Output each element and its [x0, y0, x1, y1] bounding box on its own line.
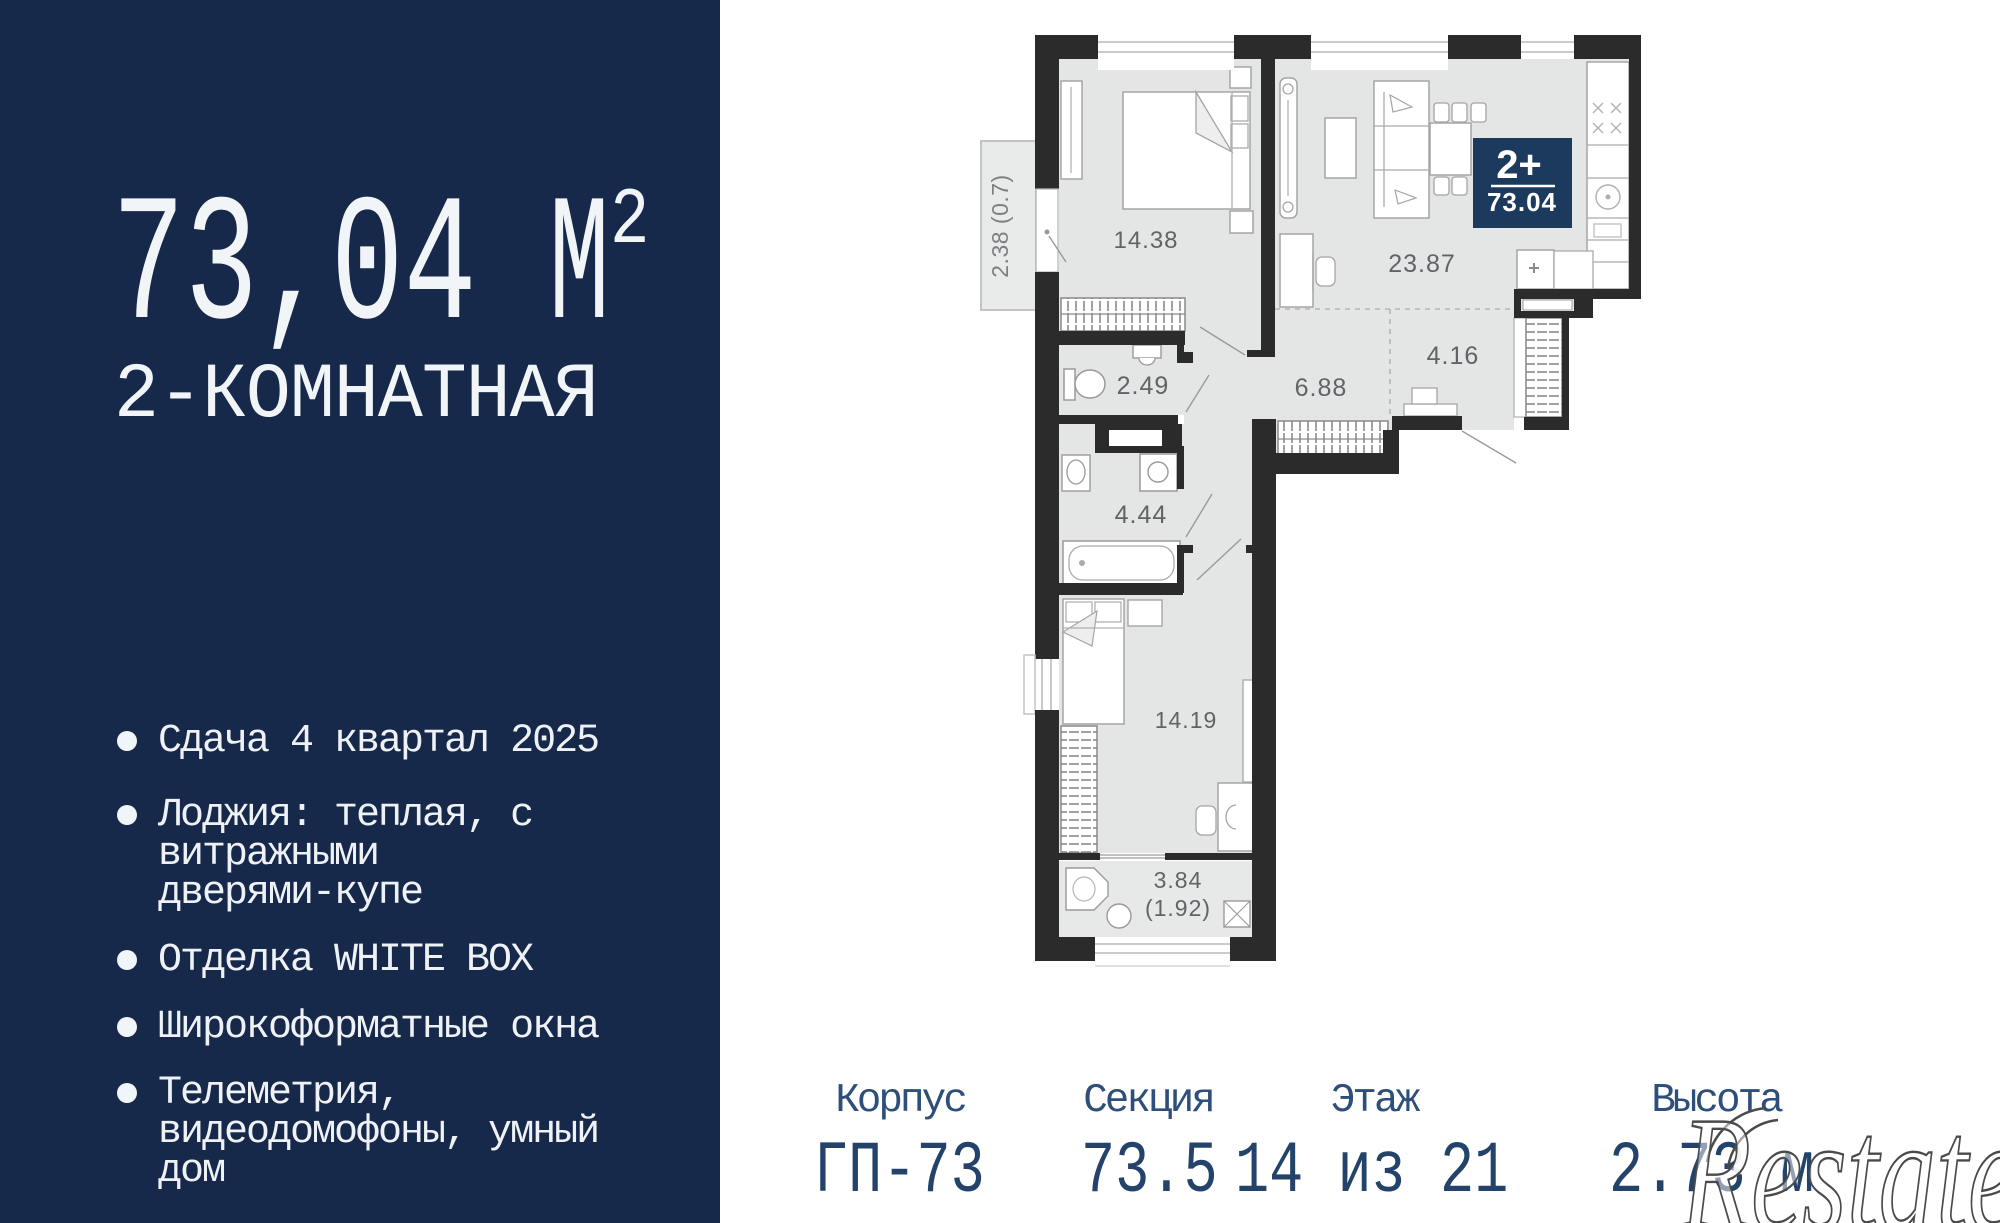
svg-text:2+: 2+: [1496, 143, 1542, 187]
svg-text:14.19: 14.19: [1155, 707, 1218, 733]
svg-text:3.84: 3.84: [1154, 867, 1203, 893]
svg-text:6.88: 6.88: [1295, 374, 1348, 402]
svg-text:(1.92): (1.92): [1145, 895, 1211, 921]
svg-text:2.49: 2.49: [1117, 372, 1170, 400]
svg-text:4.44: 4.44: [1115, 501, 1168, 529]
svg-text:4.16: 4.16: [1427, 342, 1480, 370]
svg-text:73.04: 73.04: [1487, 187, 1557, 217]
svg-text:23.87: 23.87: [1388, 250, 1456, 278]
svg-text:14.38: 14.38: [1113, 227, 1178, 254]
svg-text:2.38 (0.7): 2.38 (0.7): [987, 174, 1013, 277]
